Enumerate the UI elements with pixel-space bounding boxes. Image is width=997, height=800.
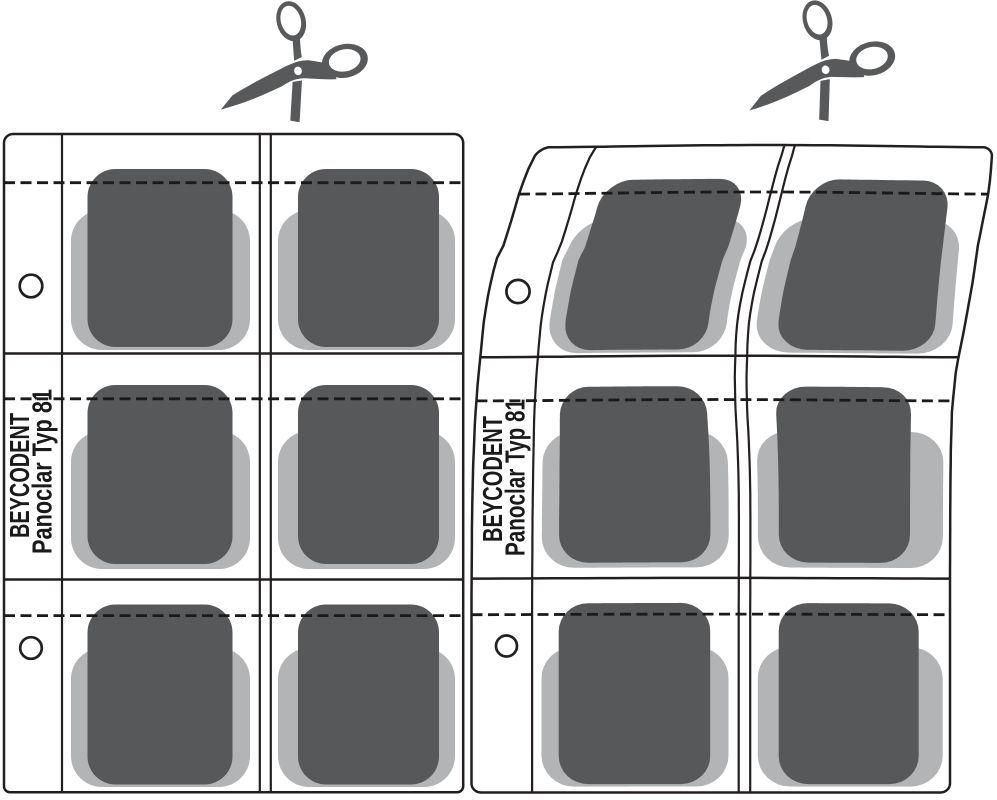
svg-text:Panoclar Typ 81: Panoclar Typ 81 xyxy=(500,399,531,556)
svg-text:Panoclar Typ 81: Panoclar Typ 81 xyxy=(27,389,58,554)
